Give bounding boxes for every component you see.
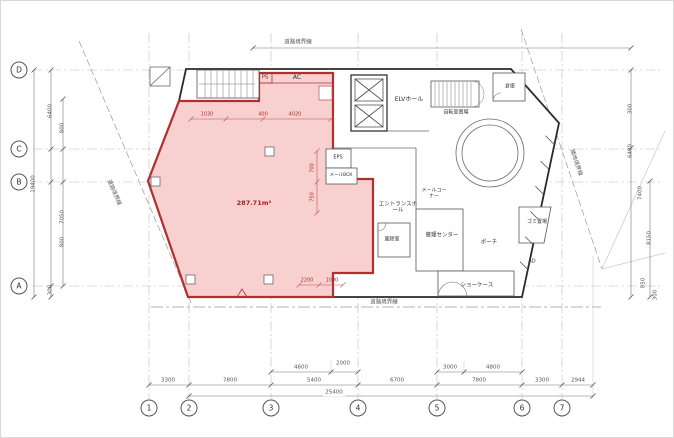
grid-row-c: C bbox=[11, 141, 28, 158]
dim-red-2: 400 bbox=[258, 113, 268, 118]
dim-total: 25400 bbox=[323, 390, 345, 396]
dim-right-3: 7400 bbox=[638, 186, 644, 200]
mailbox-label: メールBOX bbox=[330, 174, 353, 179]
grid-row-d: D bbox=[11, 62, 28, 79]
dim-main-4: 6700 bbox=[390, 378, 404, 384]
dim-left-3: 19400 bbox=[31, 175, 37, 193]
elv-hall-label: ELVホール bbox=[395, 97, 424, 103]
ad-label: AD bbox=[528, 260, 535, 265]
admin-room bbox=[416, 209, 463, 271]
dim-red-7: 1000 bbox=[326, 279, 339, 284]
dim-right-2: 6400 bbox=[628, 144, 634, 158]
grid-row-a: A bbox=[11, 278, 28, 295]
dim-right-1: 300 bbox=[628, 104, 634, 115]
showcase-label: ショーケース bbox=[461, 283, 494, 289]
dim-sub-4: 4800 bbox=[486, 365, 500, 371]
dim-main-3: 5400 bbox=[307, 378, 321, 384]
dim-left-1: 6400 bbox=[48, 104, 54, 118]
dim-main-1: 3300 bbox=[161, 378, 175, 384]
dim-red-5: 750 bbox=[311, 192, 316, 202]
tenant-area-label: 287.71m² bbox=[237, 200, 272, 207]
grid-col-3: 3 bbox=[263, 400, 280, 417]
dim-main-6: 3300 bbox=[535, 378, 549, 384]
dim-sub-1: 4600 bbox=[294, 365, 308, 371]
floor-plan-page: PS AC ELVホール 倉庫 自転車置場 EPS メールBOX メールコーナー… bbox=[0, 0, 674, 438]
storage-label: 倉庫 bbox=[505, 85, 515, 90]
dim-left-5: 800 bbox=[60, 237, 66, 248]
grid-col-5: 5 bbox=[429, 400, 446, 417]
boundary-label-top: 道路境界線 bbox=[284, 40, 312, 46]
grid-col-7: 7 bbox=[554, 400, 571, 417]
dim-left-2: 800 bbox=[60, 123, 66, 134]
garbage-label: ゴミ置場 bbox=[526, 220, 548, 226]
eps-label: EPS bbox=[333, 156, 342, 161]
plan-drawing bbox=[1, 1, 674, 438]
dim-sub-2: 2000 bbox=[336, 361, 350, 367]
entrance-hall-label: エントランスホール bbox=[377, 202, 419, 215]
dim-right-4: 8150 bbox=[647, 231, 653, 245]
dim-main-7: 2944 bbox=[571, 378, 585, 384]
dim-left-4: 7050 bbox=[60, 210, 66, 224]
dim-red-6: 2200 bbox=[301, 279, 314, 284]
dim-sub-3: 3000 bbox=[443, 365, 457, 371]
grid-col-6: 6 bbox=[514, 400, 531, 417]
ps-label: PS bbox=[262, 76, 268, 81]
grid-col-2: 2 bbox=[181, 400, 198, 417]
bicycle-parking-label: 自転車置場 bbox=[443, 111, 468, 116]
grid-row-b: B bbox=[11, 174, 28, 191]
dim-right-6: 300 bbox=[653, 290, 659, 301]
dim-main-2: 7800 bbox=[223, 378, 237, 384]
admin-center-label: 管理センター bbox=[425, 233, 458, 239]
windbreak-label: 風除室 bbox=[384, 238, 399, 243]
hatch-square-symbol bbox=[150, 67, 170, 86]
dim-left-6: 300 bbox=[48, 285, 54, 296]
dim-red-4: 700 bbox=[311, 163, 316, 173]
grid-col-1: 1 bbox=[141, 400, 158, 417]
grid-col-4: 4 bbox=[350, 400, 367, 417]
porch-label: ポーチ bbox=[481, 240, 498, 246]
dim-red-1: 1030 bbox=[201, 113, 214, 118]
dim-red-3: 4020 bbox=[289, 113, 302, 118]
dim-right-5: 850 bbox=[641, 278, 647, 289]
dim-main-5: 7800 bbox=[472, 378, 486, 384]
ac-label: AC bbox=[293, 75, 301, 81]
boundary-label-bottom: 道路境界線 bbox=[368, 300, 400, 306]
mail-corner-label: メールコーナー bbox=[421, 188, 447, 200]
